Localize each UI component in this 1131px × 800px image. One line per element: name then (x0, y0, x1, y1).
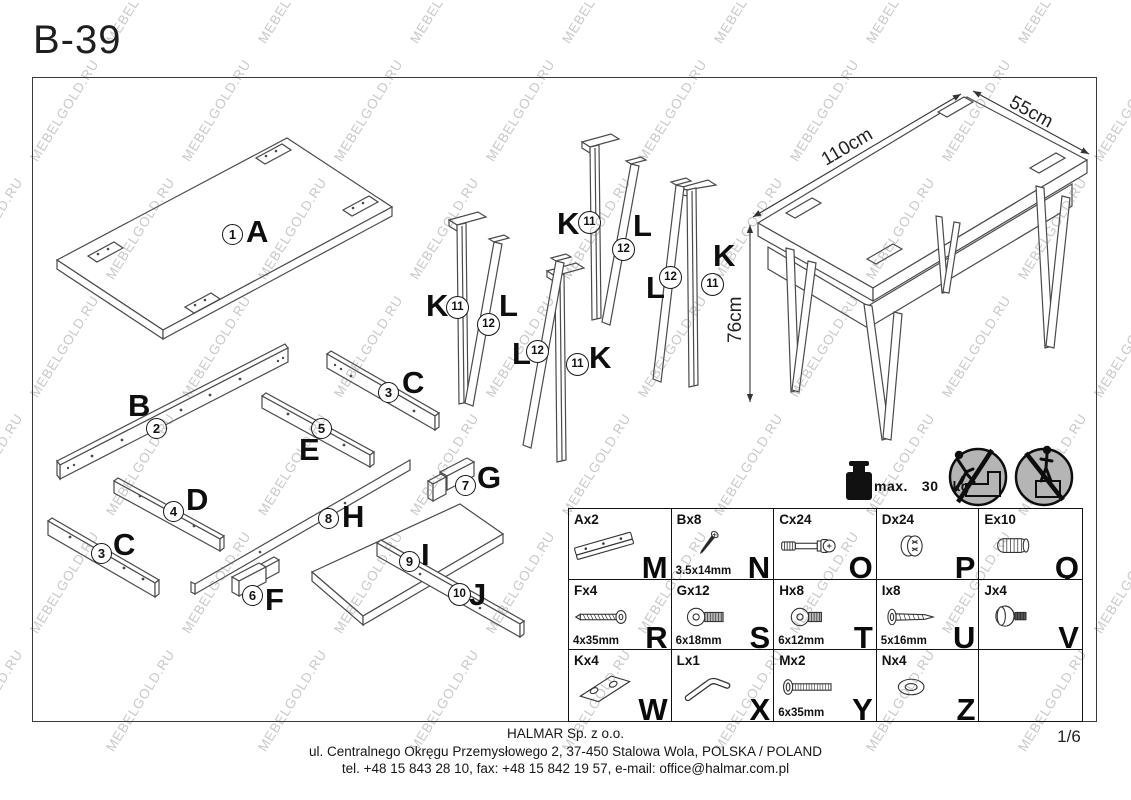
hardware-size: 6x35mm (778, 707, 824, 719)
hardware-step-letter: S (750, 622, 771, 650)
hardware-step-letter: P (955, 552, 976, 580)
drawer-slide-icon (573, 525, 637, 567)
hardware-step-letter: M (642, 552, 668, 580)
hardware-parts-table: Ax2MBx83.5x14mmNCx24ODx24PEx10QFx44x35mm… (568, 508, 1083, 722)
weight-limit-prefix: max. (874, 478, 908, 494)
hardware-step-letter: R (645, 622, 667, 650)
hardware-cell-Lx1: Lx1X (672, 650, 775, 721)
flange-bolt-short-icon (778, 596, 842, 638)
hardware-cell-Cx24: Cx24O (774, 509, 877, 580)
screw-long-icon (573, 596, 637, 638)
no-standing-icon (1016, 446, 1072, 505)
assembly-instruction-page: B-39 (0, 0, 1131, 800)
hardware-cell-Bx8: Bx83.5x14mmN (672, 509, 775, 580)
part-d-rail (114, 478, 224, 551)
screw-small-icon (676, 525, 740, 567)
hardware-step-letter: U (953, 622, 975, 650)
hardware-step-letter: X (750, 694, 771, 721)
hardware-step-letter: O (849, 552, 873, 580)
weight-limit-value: 30 (922, 478, 939, 494)
washer-icon (881, 666, 945, 708)
hardware-cell-Nx4: Nx4Z (877, 650, 980, 721)
pan-screw-icon (881, 596, 945, 638)
hardware-cell-Kx4: Kx4W (569, 650, 672, 721)
hardware-step-letter: Z (956, 694, 975, 721)
hardware-cell-Mx2: Mx26x35mmY (774, 650, 877, 721)
hardware-step-letter: W (638, 694, 667, 721)
part-b-rail (57, 344, 288, 479)
hardware-step-letter: V (1058, 622, 1079, 650)
page-number: 1/6 (1040, 727, 1098, 747)
hardware-step-letter: Y (852, 694, 873, 721)
dowel-icon (983, 525, 1047, 567)
hardware-cell-Ax2: Ax2M (569, 509, 672, 580)
allen-key-icon (676, 666, 740, 708)
no-climbing-icon (950, 449, 1006, 505)
flange-bolt-icon (676, 596, 740, 638)
footer: HALMAR Sp. z o.o. ul. Centralnego Okręgu… (0, 725, 1131, 778)
part-c-rail-bottom (48, 518, 159, 597)
cam-bolt-icon (778, 525, 842, 567)
weight-icon (846, 461, 872, 500)
hardware-step-letter: N (748, 552, 770, 580)
part-a-top-panel (57, 138, 392, 339)
hardware-step-letter: T (854, 622, 873, 650)
hardware-cell-Fx4: Fx44x35mmR (569, 580, 672, 651)
height-dimension-label: 76cm (725, 297, 746, 343)
legs-l-slanted (465, 157, 691, 448)
part-c-rail-top (327, 351, 439, 430)
hardware-cell-Ix8: Ix85x16mmU (877, 580, 980, 651)
knob-bolt-icon (983, 596, 1047, 638)
hardware-cell-Hx8: Hx86x12mmT (774, 580, 877, 651)
machine-screw-icon (778, 666, 842, 708)
part-e-rail (262, 393, 374, 467)
hardware-cell-Ex10: Ex10Q (979, 509, 1082, 580)
hardware-cell-empty (979, 650, 1082, 721)
hardware-step-letter: Q (1055, 552, 1079, 580)
hardware-cell-Jx4: Jx4V (979, 580, 1082, 651)
footer-contact: tel. +48 15 843 28 10, fax: +48 15 842 1… (0, 760, 1131, 778)
plate-icon (573, 666, 637, 708)
part-g-bracket (428, 458, 474, 501)
weight-limit-text: max. 30 kg (874, 478, 970, 494)
cam-lock-icon (881, 525, 945, 567)
hardware-cell-Dx24: Dx24P (877, 509, 980, 580)
weight-limit-unit: kg (953, 478, 970, 494)
footer-address: ul. Centralnego Okręgu Przemysłowego 2, … (0, 743, 1131, 761)
assembled-desk-view (758, 97, 1087, 440)
footer-company: HALMAR Sp. z o.o. (0, 725, 1131, 743)
hardware-cell-Gx12: Gx126x18mmS (672, 580, 775, 651)
